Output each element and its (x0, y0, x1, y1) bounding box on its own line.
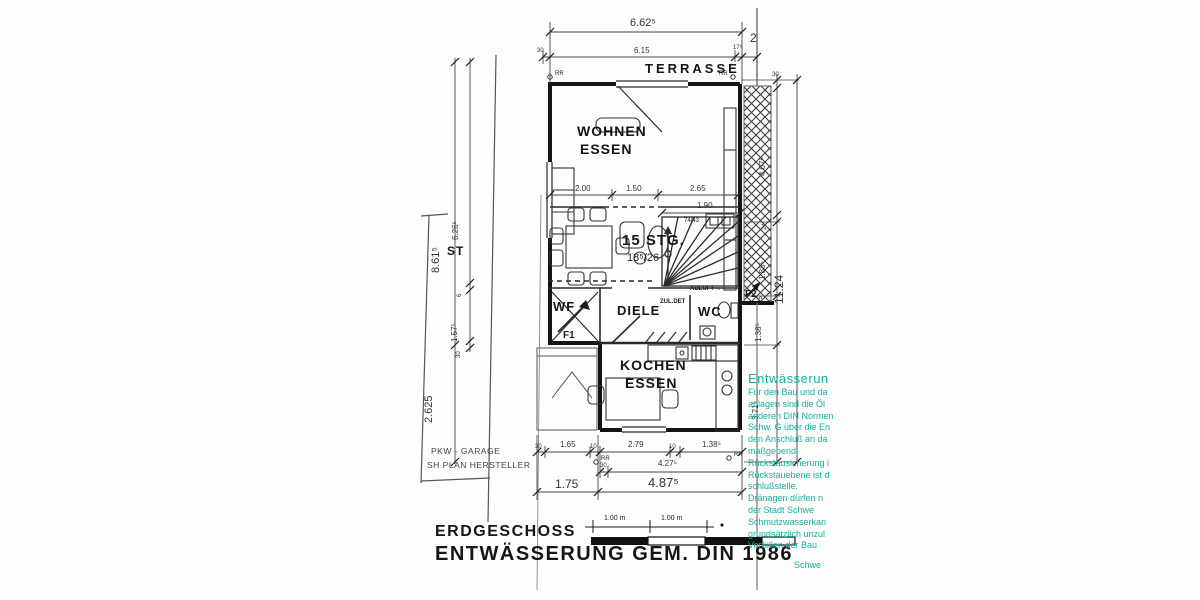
note-line: Entwässerun (748, 371, 860, 387)
staircase (662, 217, 738, 286)
note-line: Verfüllen der Bau (748, 540, 860, 552)
room-label-kochen: KOCHEN (620, 358, 687, 372)
rr-label-bottom-left: RR (601, 456, 610, 462)
dim-left-6265: 6.26⁵ (452, 221, 460, 240)
boundary-strip-label: 2 (750, 32, 757, 44)
room-label-wc: WC (698, 305, 722, 318)
dim-w-265: 2.65 (690, 185, 706, 193)
stairs-count-label: 15 STG. (622, 233, 685, 248)
door-label-f1: F1 (563, 331, 575, 341)
dim-b1-30: 30 (535, 444, 542, 450)
dim-right-4075: 4.07⁵ (759, 157, 767, 176)
zuluft-label: ZUL.DET (660, 299, 685, 305)
rr-label-top-left: RR (555, 71, 564, 77)
dim-left-1575: 1.57⁵ (451, 323, 459, 342)
garage-label-line1: PKW - GARAGE (431, 447, 500, 456)
note-line: anderen DIN Normen (748, 411, 860, 423)
note-line: Schmutzwasserkan (748, 517, 860, 529)
note-line: maßgebend. (748, 446, 860, 458)
dim-top-30: 30 (537, 48, 544, 54)
room-label-essen-top: ESSEN (580, 142, 632, 156)
dim-top-615: 6.15 (634, 47, 650, 55)
dim-right-25: 25 (758, 296, 764, 303)
scale-seg1-label: 1.00 m (604, 515, 625, 522)
dim-b1-165: 1.65 (560, 441, 576, 449)
dim-right-total-1124: 11.24 (773, 275, 785, 304)
note-line: schlußstelle. (748, 481, 860, 493)
garage-outline (421, 55, 541, 590)
note-line: der Stadt Schwe (748, 505, 860, 517)
radiator-box (706, 214, 734, 228)
rr-label-bottom-right: RR (734, 452, 743, 458)
note-line: Rückstauebene ist d (748, 470, 860, 482)
dim-left-30: 30 (456, 351, 462, 358)
dim-b2-30: 30 (600, 463, 607, 469)
dim-b1-279: 2.79 (628, 441, 644, 449)
dim-b3-4875: 4.87⁵ (648, 476, 679, 489)
note-line: anlagen sind die Öl (748, 399, 860, 411)
door-label-f2: F2 (745, 290, 757, 300)
title-floor: ERDGESCHOSS (435, 524, 576, 540)
dim-b1-1385: 1.38⁵ (702, 441, 721, 449)
dim-b3-175: 1.75 (555, 478, 578, 490)
dim-left-2625: 2.625 (424, 395, 435, 423)
dining-furniture (550, 208, 629, 285)
note-line: Dränagen dürfen n (748, 493, 860, 505)
room-label-wohnen: WOHNEN (577, 124, 647, 138)
floor-plan-linework (0, 0, 1200, 600)
garage-label-line2: SH PLAN HERSTELLER (427, 461, 530, 470)
abluft-label: ABLUFT → (690, 286, 722, 292)
note-line: Schw. G über die En (748, 422, 860, 434)
floor-plan-scan: TERRASSE WOHNEN ESSEN 15 STG. 18⁵/26 WF … (0, 0, 1200, 600)
dim-right-1885: 1.88⁵ (759, 261, 767, 280)
note-line: Rückstausicherung i (748, 458, 860, 470)
room-label-essen-bottom: ESSEN (625, 376, 677, 390)
note-line: grundsätzlich unzul (748, 529, 860, 541)
dim-stair-190: 1.90 (697, 202, 713, 210)
dim-w-200: 2.00 (575, 185, 591, 193)
dim-b2-4275: 4.27⁵ (658, 460, 677, 468)
scale-seg2-label: 1.00 m (661, 515, 682, 522)
dim-b1-10b: 10 (669, 444, 676, 450)
stairs-rise-label: 18⁵/26 (627, 253, 659, 264)
note-line: Für den Bau und da (748, 387, 860, 399)
dim-right-30: 30 (772, 72, 779, 78)
room-label-wf: WF (553, 300, 575, 313)
title-subtitle: ENTWÄSSERUNG GEM. DIN 1986 (435, 544, 793, 564)
room-label-st: ST (447, 245, 464, 257)
note-signature: Schwe (748, 552, 860, 572)
dim-right-24: 24 (762, 223, 768, 230)
window-size-label: 74/43 (684, 218, 699, 224)
dim-right-1385: 1.38⁵ (755, 323, 763, 342)
dim-b1-10a: 10 (590, 444, 597, 450)
dim-top-total: 6.62⁵ (630, 18, 656, 29)
rr-label-top-right: RR (719, 71, 728, 77)
grating-marks (646, 332, 687, 342)
dim-top-175: 17⁵ (733, 45, 742, 51)
dim-left-8615: 8.61⁵ (431, 247, 442, 273)
room-label-diele: DIELE (617, 304, 660, 317)
drainage-notes-stamp: Entwässerun Für den Bau und da anlagen s… (748, 371, 860, 572)
dim-left-6: 6 (457, 294, 463, 297)
note-line: den Anschluß an da (748, 434, 860, 446)
dim-w-150: 1.50 (626, 185, 642, 193)
